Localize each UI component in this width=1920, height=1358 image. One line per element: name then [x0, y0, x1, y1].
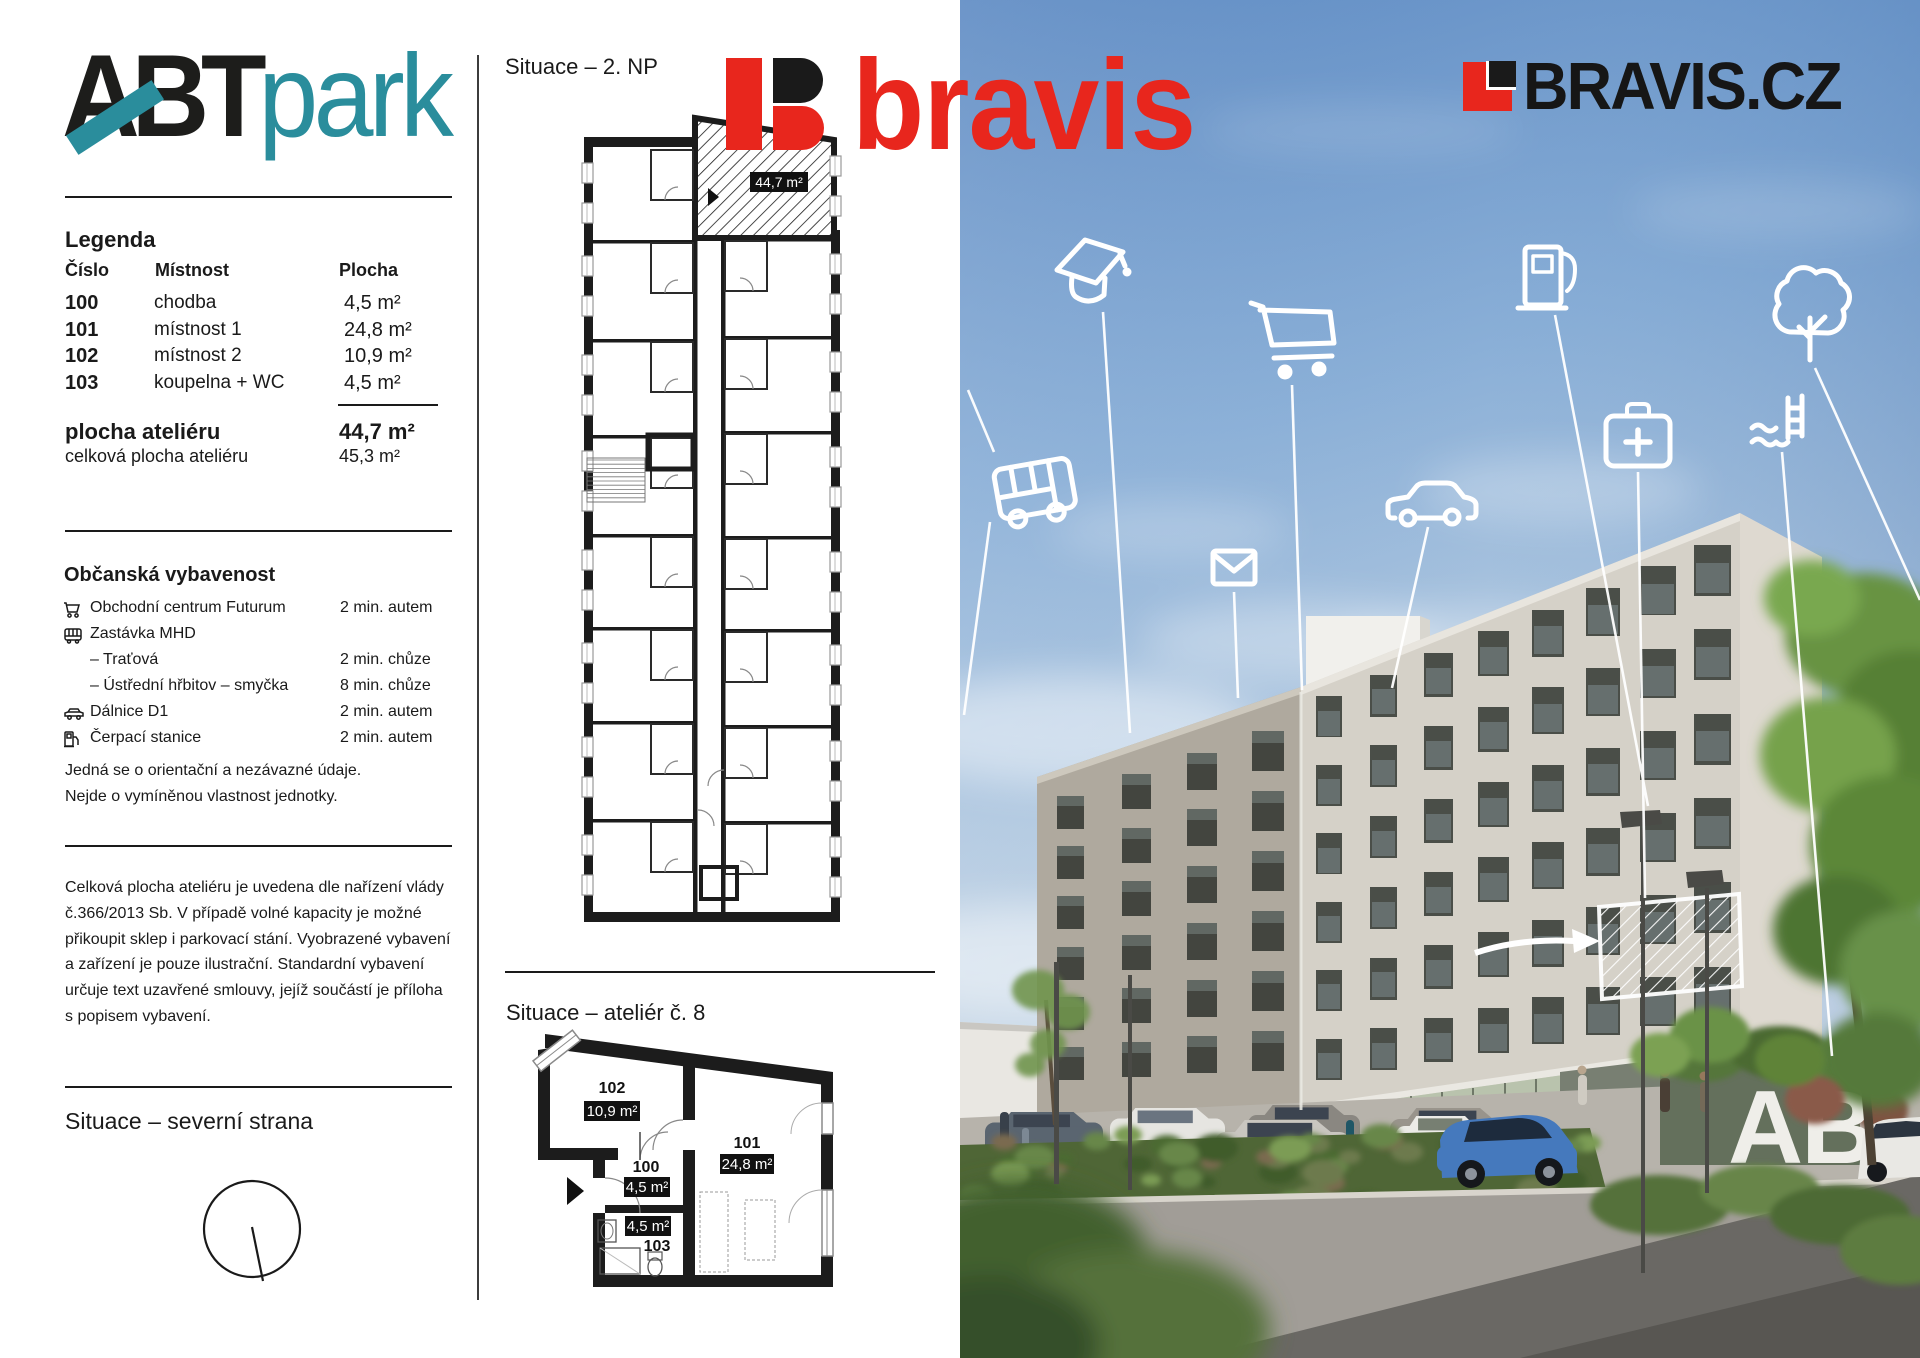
svg-text:100: 100 — [633, 1159, 660, 1176]
svg-text:103: 103 — [644, 1238, 671, 1255]
svg-text:4,5 m²: 4,5 m² — [627, 1218, 670, 1235]
svg-text:24,8 m²: 24,8 m² — [722, 1156, 773, 1173]
svg-text:44,7 m²: 44,7 m² — [755, 174, 803, 190]
svg-text:10,9 m²: 10,9 m² — [587, 1103, 638, 1120]
svg-text:4,5 m²: 4,5 m² — [626, 1179, 669, 1196]
svg-text:102: 102 — [599, 1080, 626, 1097]
svg-text:101: 101 — [734, 1135, 761, 1152]
